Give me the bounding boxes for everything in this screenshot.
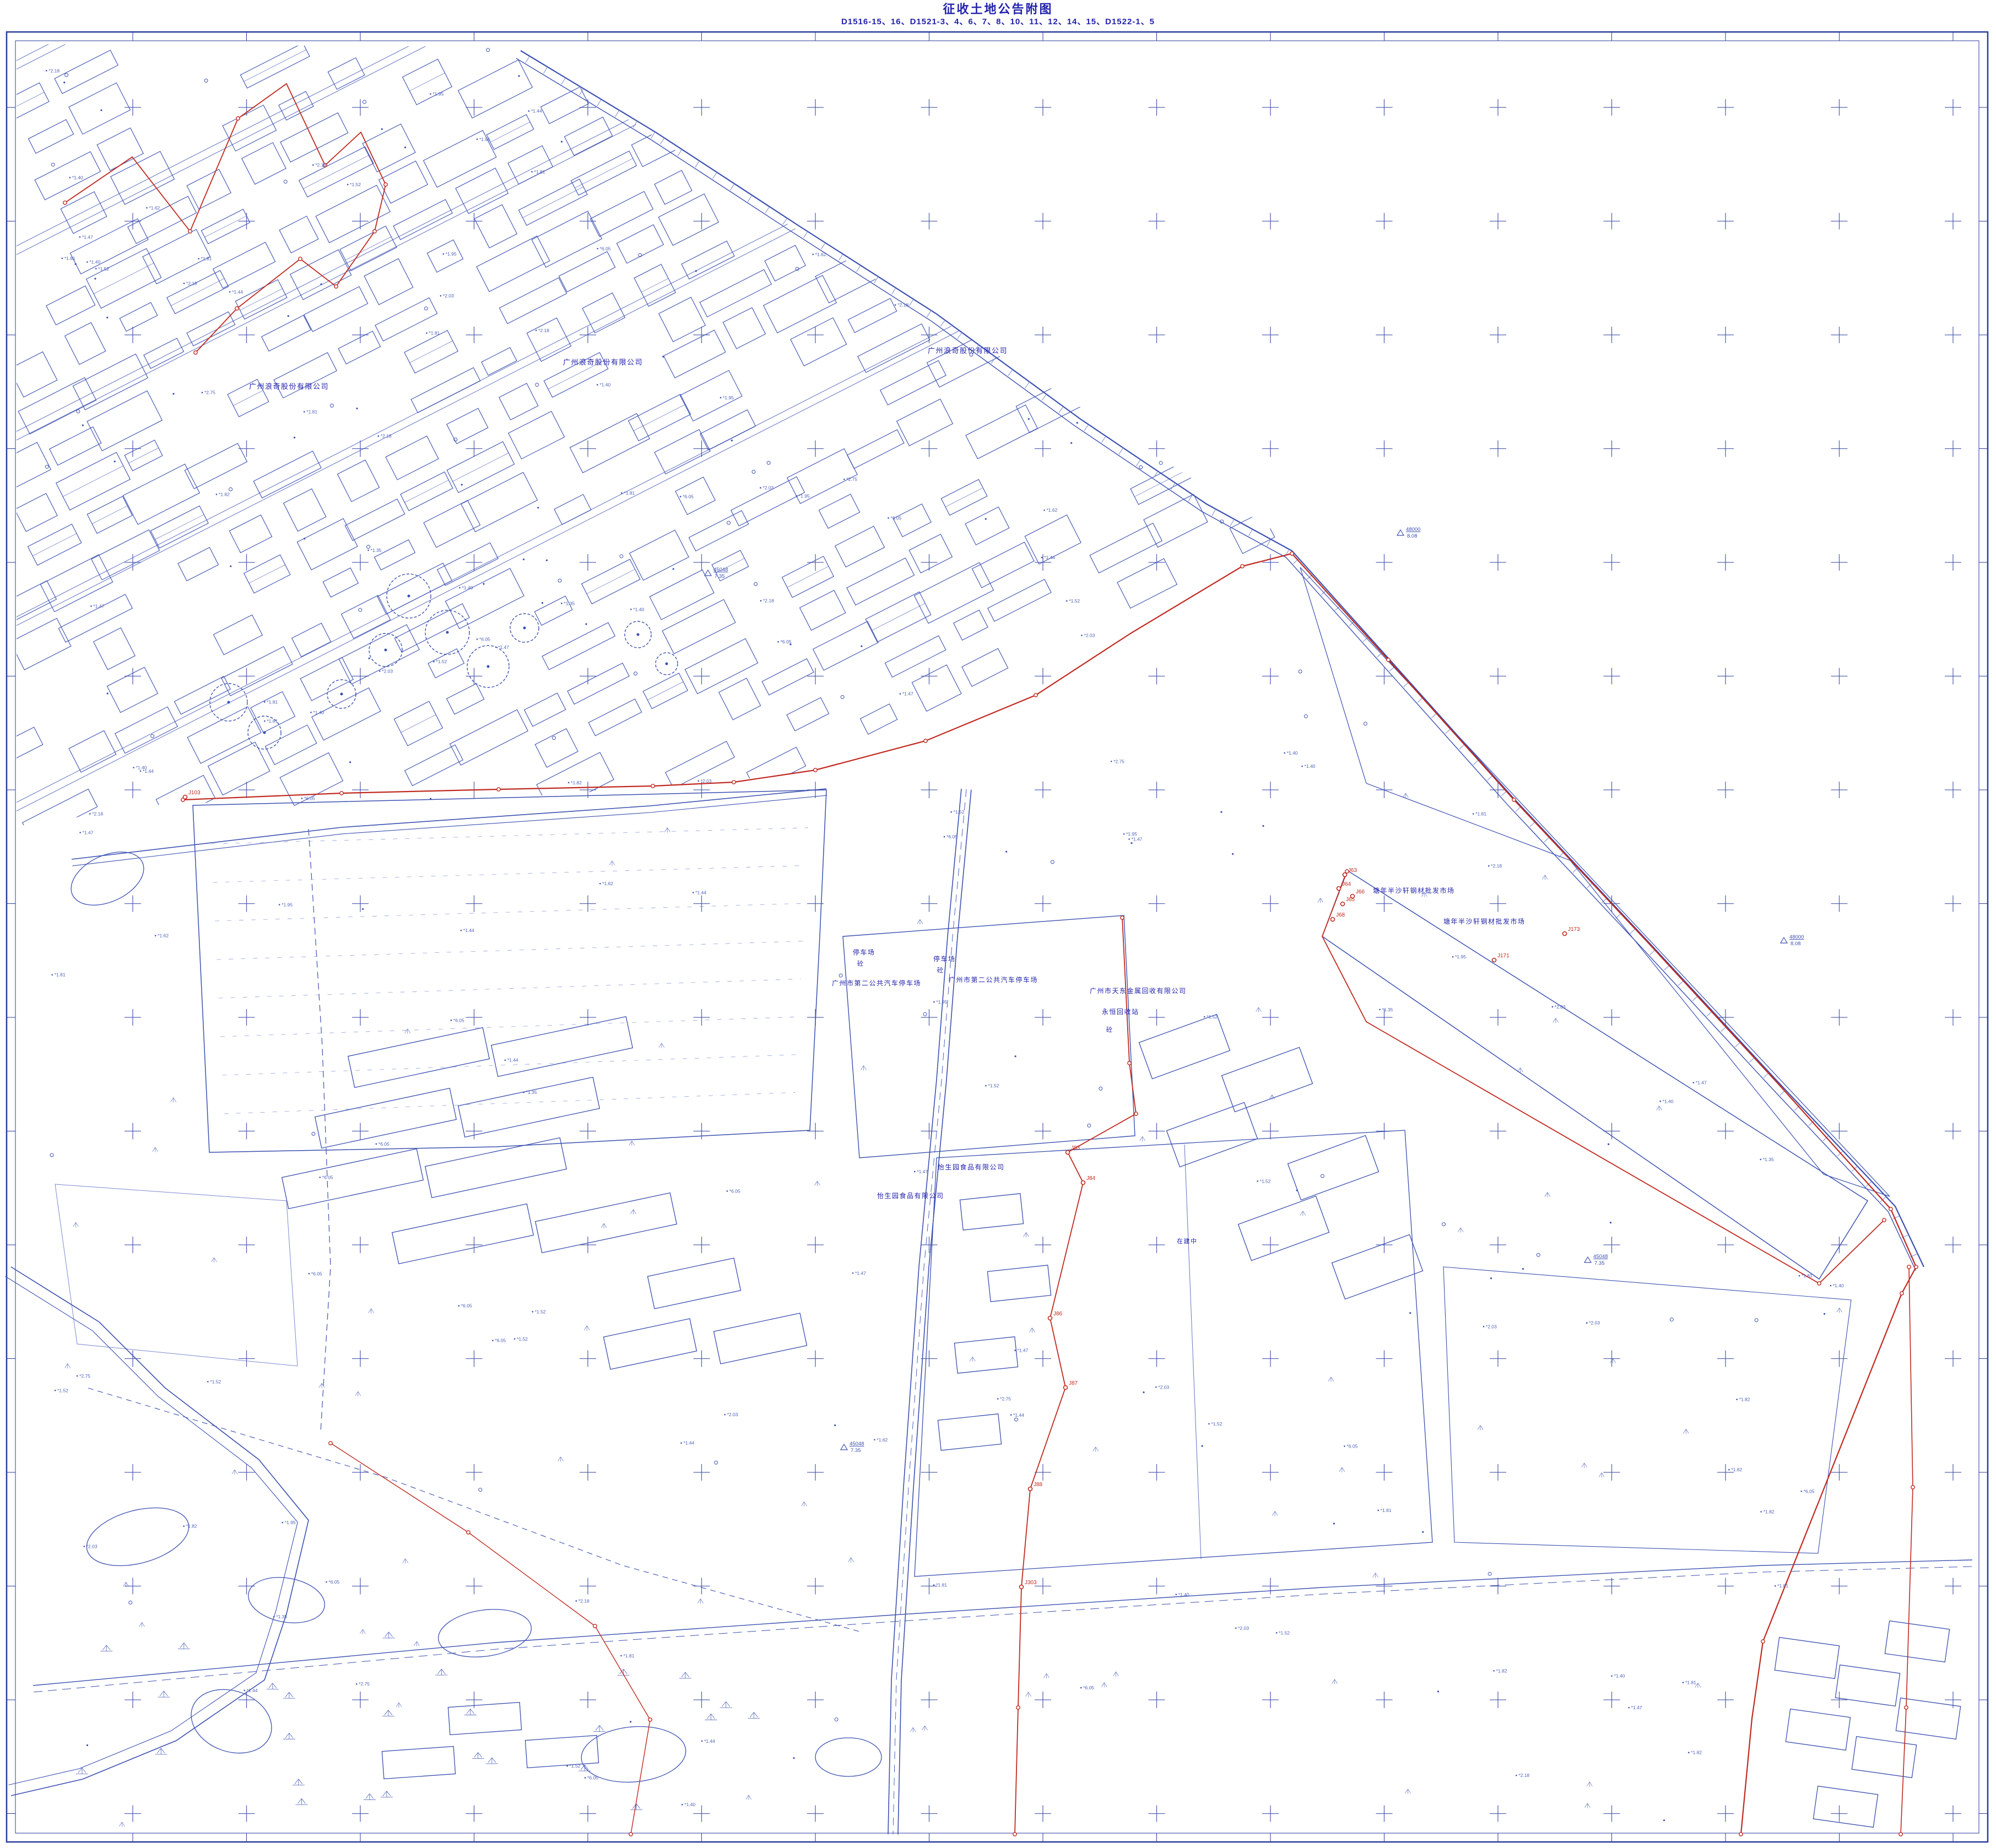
small-symbols <box>45 48 1842 1827</box>
boundary-point-label: J66 <box>1356 889 1365 895</box>
spot-elevation: *1.40 <box>1287 750 1298 756</box>
map-feature-label: 永恒回收站 <box>1102 1008 1139 1016</box>
control-point-id: 48000 <box>1406 527 1420 533</box>
spot-elevation: *1.81 <box>429 330 440 336</box>
spot-elevation: *1.62 <box>1046 507 1057 513</box>
spot-elevation: *1.35 <box>276 1614 287 1619</box>
spot-elevation: *1.35 <box>564 600 575 606</box>
boundary-point-label: J88 <box>1034 1482 1043 1488</box>
spot-elevation: *1.82 <box>1691 1750 1702 1755</box>
spot-elevation: *1.44 <box>531 109 542 114</box>
spot-elevation: *6.05 <box>311 1271 322 1276</box>
map-feature-label: 广州市天东金属回收有限公司 <box>1090 987 1187 995</box>
spot-elevation: *1.44 <box>247 1688 258 1693</box>
spot-elevation: *2.75 <box>846 476 857 482</box>
control-point-id: 45048 <box>1593 1254 1608 1260</box>
boundary-point-label: J84 <box>1086 1175 1096 1182</box>
spot-elevation: *1.62 <box>149 205 160 210</box>
spot-elevation: *1.52 <box>98 266 109 272</box>
map-feature-label: 在建中 <box>1177 1237 1198 1245</box>
spot-elevation: *1.81 <box>306 409 317 415</box>
spot-elevation: *6.05 <box>1346 1444 1357 1449</box>
spot-elevation: *1.47 <box>83 830 94 836</box>
spot-elevation: *6.05 <box>495 1338 506 1343</box>
spot-elevation: *1.52 <box>1207 1014 1218 1020</box>
map-feature-label: 怡生园食品有限公司 <box>877 1191 944 1200</box>
spot-elevation: *1.47 <box>498 644 509 650</box>
spot-elevation: *1.40 <box>599 382 610 388</box>
map-feature-label: 怡生园食品有限公司 <box>938 1163 1005 1171</box>
spot-elevation: *1.95 <box>479 137 490 142</box>
spot-elevation: *2.03 <box>1084 633 1095 638</box>
spot-elevation: *1.40 <box>1833 1283 1844 1288</box>
spot-elevation: *1.44 <box>704 1738 715 1744</box>
spot-elevation: *6.05 <box>600 246 611 251</box>
cadastral-map-canvas: J63J64J65J66J68J171J173J83J84J86J87J88J3… <box>0 0 1996 1848</box>
map-feature-label: 广州浪奇股份有限公司 <box>249 382 329 391</box>
spot-elevation: *6.05 <box>1804 1488 1815 1494</box>
spot-elevation: *6.05 <box>453 1017 464 1023</box>
control-point-elevation: 8.08 <box>1407 533 1418 539</box>
spot-elevation: *1.81 <box>267 718 278 724</box>
spot-elevation: *1.47 <box>1132 836 1143 842</box>
spot-elevation: *1.52 <box>988 1083 999 1088</box>
spot-elevation: *1.62 <box>158 933 169 939</box>
spot-elevation: *1.40 <box>1305 763 1316 769</box>
spot-elevation: *1.40 <box>462 585 473 590</box>
spot-elevation: *2.75 <box>204 390 215 395</box>
map-feature-label: 广州市第二公共汽车停车场 <box>949 976 1038 984</box>
map-feature-label: 广州浪奇股份有限公司 <box>563 358 643 366</box>
spot-elevation: *2.03 <box>1589 1320 1600 1326</box>
spot-elevation: *1.95 <box>432 91 443 97</box>
spot-elevation: *1.82 <box>1496 1668 1507 1673</box>
map-feature-label: 停车场 <box>933 955 956 963</box>
spot-elevation: *1.35 <box>371 548 382 553</box>
spot-elevation: *1.81 <box>267 699 278 704</box>
spot-elevation: *1.40 <box>1614 1673 1625 1679</box>
spot-elevation: *1.52 <box>954 809 965 815</box>
map-feature-label: 砼 <box>1106 1026 1113 1033</box>
spot-elevation: *2.18 <box>186 281 197 286</box>
boundary-point-label: J87 <box>1069 1380 1078 1386</box>
control-point-id: 45048 <box>713 567 728 573</box>
spot-elevation: *1.52 <box>350 182 361 187</box>
spot-elevation: *1.81 <box>1777 1583 1788 1589</box>
spot-elevation: *1.81 <box>624 490 635 496</box>
spot-elevation: *1.95 <box>936 999 947 1005</box>
spot-elevation: *1.81 <box>1381 1508 1392 1513</box>
map-feature-label: 塘年半沙轩钢材批发市场 <box>1373 886 1455 895</box>
spot-elevation: *1.52 <box>1260 1178 1271 1184</box>
spot-elevation: *1.82 <box>219 492 230 497</box>
spot-elevation: *2.75 <box>359 1681 370 1687</box>
spot-elevation: *2.18 <box>897 302 908 308</box>
boundary-point-label: J64 <box>1342 881 1351 887</box>
map-feature-label: 广州浪奇股份有限公司 <box>928 346 1008 355</box>
spot-elevation: *1.35 <box>526 1090 537 1095</box>
spot-elevation: *1.44 <box>463 928 474 933</box>
control-point-id: 45048 <box>850 1441 864 1447</box>
spot-elevation: *1.44 <box>1044 555 1055 560</box>
control-point-elevation: 7.35 <box>851 1448 861 1454</box>
spot-elevation: *1.52 <box>535 1309 546 1314</box>
spot-elevation: *1.52 <box>210 1379 221 1384</box>
spot-elevation: *1.44 <box>695 890 706 895</box>
spot-elevation: *1.81 <box>1802 1273 1813 1278</box>
feature-labels: 广州浪奇股份有限公司广州浪奇股份有限公司广州浪奇股份有限公司停车场砼广州市第二公… <box>249 346 1526 1245</box>
spot-elevation: *2.18 <box>763 598 774 604</box>
spot-elevation: *6.05 <box>729 1188 740 1194</box>
map-feature-label: 广州市第二公共汽车停车场 <box>832 979 921 987</box>
spot-elevation: *1.82 <box>1739 1397 1750 1402</box>
spot-elevation: *1.47 <box>917 1169 928 1174</box>
boundary-point-label: J303 <box>1025 1580 1037 1586</box>
spot-elevation: *2.03 <box>727 1412 738 1417</box>
spot-elevation: *1.52 <box>1069 598 1080 604</box>
south-building-clusters <box>282 1014 1961 1827</box>
spot-elevation: *1.52 <box>1211 1421 1222 1427</box>
spot-elevation: *1.44 <box>507 1058 518 1063</box>
map-frame <box>7 32 1988 1842</box>
spot-elevation: *1.82 <box>1764 1509 1775 1515</box>
boundary-point-label: J68 <box>1336 912 1345 918</box>
spot-elevation: *6.05 <box>781 639 792 644</box>
spot-elevation: *1.81 <box>534 169 545 175</box>
spot-elevation: *1.62 <box>815 252 826 257</box>
map-feature-label: 砼 <box>857 960 864 967</box>
spot-elevations: *1.81*1.44*1.81*1.47*2.03*1.44*6.05*1.81… <box>46 68 1844 1807</box>
spot-elevation: *2.18 <box>381 433 392 439</box>
spot-elevation: *1.81 <box>55 972 66 978</box>
spot-elevation: *2.03 <box>1486 1324 1497 1329</box>
spot-elevation: *2.03 <box>86 1544 98 1549</box>
spot-elevation: *2.18 <box>1518 1773 1529 1778</box>
spot-elevation: *2.75 <box>1000 1396 1011 1402</box>
spot-elevation: *1.95 <box>1455 954 1466 960</box>
spot-elevation: *2.18 <box>48 68 59 73</box>
spot-elevation: *1.81 <box>623 1653 634 1659</box>
spot-elevation: *1.47 <box>1696 1080 1707 1085</box>
spot-elevation: *1.47 <box>1017 1348 1028 1353</box>
spot-elevation: *6.05 <box>378 1141 390 1147</box>
control-points: 480008.08450487.35480008.08450487.354504… <box>705 527 1804 1454</box>
spot-elevation: *1.40 <box>313 709 324 715</box>
spot-elevation: *2.03 <box>1238 1625 1249 1631</box>
boundary-point-label: J173 <box>1568 926 1580 933</box>
spot-elevation: *1.81 <box>201 256 212 262</box>
spot-elevation: *6.05 <box>587 1775 598 1781</box>
spot-elevation: *1.95 <box>723 395 734 400</box>
spot-elevation: *2.03 <box>443 293 454 299</box>
spot-elevation: *1.40 <box>1663 1098 1674 1104</box>
map-feature-label: 砼 <box>937 967 944 974</box>
boundary-point-label: J63 <box>1348 868 1357 874</box>
spot-elevation: *1.35 <box>1763 1157 1774 1162</box>
spot-elevation: *2.18 <box>1491 863 1502 869</box>
spot-elevation: *6.05 <box>683 494 694 500</box>
spot-elevation: *1.52 <box>1279 1630 1290 1635</box>
map-feature-label: 塘年半沙轩钢材批发市场 <box>1443 917 1526 925</box>
spot-elevation: *2.18 <box>538 328 549 333</box>
control-point-elevation: 7.35 <box>715 573 725 579</box>
spot-elevation: *1.52 <box>570 1763 581 1769</box>
spot-elevation: *2.03 <box>1555 1004 1566 1010</box>
map-title: 征收土地公告附图 <box>0 2 1996 17</box>
spot-elevation: *2.75 <box>79 1373 90 1379</box>
boundary-point-label: J86 <box>1053 1311 1063 1317</box>
spot-elevation: *6.05 <box>1083 1685 1094 1690</box>
spot-elevation: *1.44 <box>143 768 154 774</box>
spot-elevation: *6.05 <box>461 1303 472 1309</box>
spot-elevation: *1.47 <box>902 691 913 697</box>
boundary-point-label: J103 <box>188 790 201 796</box>
spot-elevation: *2.18 <box>315 162 326 168</box>
title-block: 征收土地公告附图 D1516-15、16、D1521-3、4、6、7、8、10、… <box>0 2 1996 28</box>
spot-elevation: *1.52 <box>436 659 447 664</box>
spot-elevation: *2.18 <box>578 1598 589 1603</box>
spot-elevation: *1.40 <box>633 606 644 612</box>
spot-elevation: *1.82 <box>1731 1467 1742 1472</box>
spot-elevation: *1.62 <box>602 881 613 886</box>
spot-elevation: *6.05 <box>479 636 490 642</box>
spot-elevation: *1.40 <box>72 175 83 180</box>
spot-elevation: *2.03 <box>382 669 393 674</box>
spot-elevation: *1.40 <box>1178 1592 1189 1597</box>
land-acquisition-map-page: 征收土地公告附图 D1516-15、16、D1521-3、4、6、7、8、10、… <box>0 0 1996 1848</box>
roads <box>33 51 1972 1834</box>
spot-elevation: *2.03 <box>762 485 773 491</box>
spot-elevation: *1.44 <box>1013 1412 1024 1418</box>
spot-elevation: *1.52 <box>57 1388 68 1393</box>
spot-elevation: *1.62 <box>877 1437 888 1443</box>
spot-elevation: *1.40 <box>89 259 100 265</box>
spot-elevation: *1.47 <box>93 603 104 609</box>
boundary-point-label: J83 <box>1071 1145 1080 1151</box>
spot-elevation: *1.47 <box>1631 1705 1642 1710</box>
spot-elevation: *1.47 <box>82 234 93 240</box>
spot-elevation: *2.75 <box>1113 758 1124 764</box>
spot-elevation: *1.47 <box>855 1270 866 1276</box>
map-sheet-numbers: D1516-15、16、D1521-3、4、6、7、8、10、11、12、14、… <box>0 17 1996 28</box>
spot-elevation: *6.05 <box>304 795 315 801</box>
spot-elevation: *1.95 <box>285 1520 296 1525</box>
spot-elevation: *1.95 <box>1126 831 1137 837</box>
spot-elevation: *1.44 <box>684 1440 695 1446</box>
spot-elevation: *6.05 <box>322 1175 333 1180</box>
control-point-elevation: 8.08 <box>1791 941 1801 947</box>
spot-elevation: *1.35 <box>1382 1007 1393 1012</box>
river-and-ponds <box>5 841 881 1809</box>
open-parcels <box>55 567 1890 1576</box>
industrial-parcel-zone <box>0 0 1417 923</box>
spot-elevation: *1.82 <box>186 1524 197 1529</box>
control-point-id: 48000 <box>1789 934 1804 940</box>
spot-elevation: *1.40 <box>684 1802 695 1807</box>
spot-elevation: *1.95 <box>282 902 293 907</box>
spot-elevation: *1.95 <box>446 251 457 257</box>
spot-elevation: *6.05 <box>946 834 958 839</box>
spot-elevation: *1.95 <box>799 493 810 498</box>
spot-elevation: *6.05 <box>328 1579 339 1585</box>
spot-elevation: *1.81 <box>64 256 75 261</box>
boundary-point-label: J171 <box>1497 953 1510 959</box>
spot-elevation: *6.05 <box>891 515 902 521</box>
spot-elevation: *2.03 <box>701 778 712 784</box>
spot-elevation: *2.18 <box>92 811 103 816</box>
spot-elevation: *1.81 <box>1475 811 1486 817</box>
spot-elevation: *1.52 <box>517 1336 528 1342</box>
spot-elevation: *2.03 <box>1158 1384 1169 1390</box>
spot-elevation: *1.81 <box>1685 1680 1696 1686</box>
spot-elevation: *1.82 <box>571 780 582 785</box>
spot-elevation: *1.81 <box>936 1583 947 1588</box>
map-feature-label: 停车场 <box>853 948 875 956</box>
spot-elevation: *1.44 <box>232 289 243 295</box>
control-point-elevation: 7.35 <box>1594 1260 1605 1266</box>
grid-crosses <box>125 99 1961 1822</box>
